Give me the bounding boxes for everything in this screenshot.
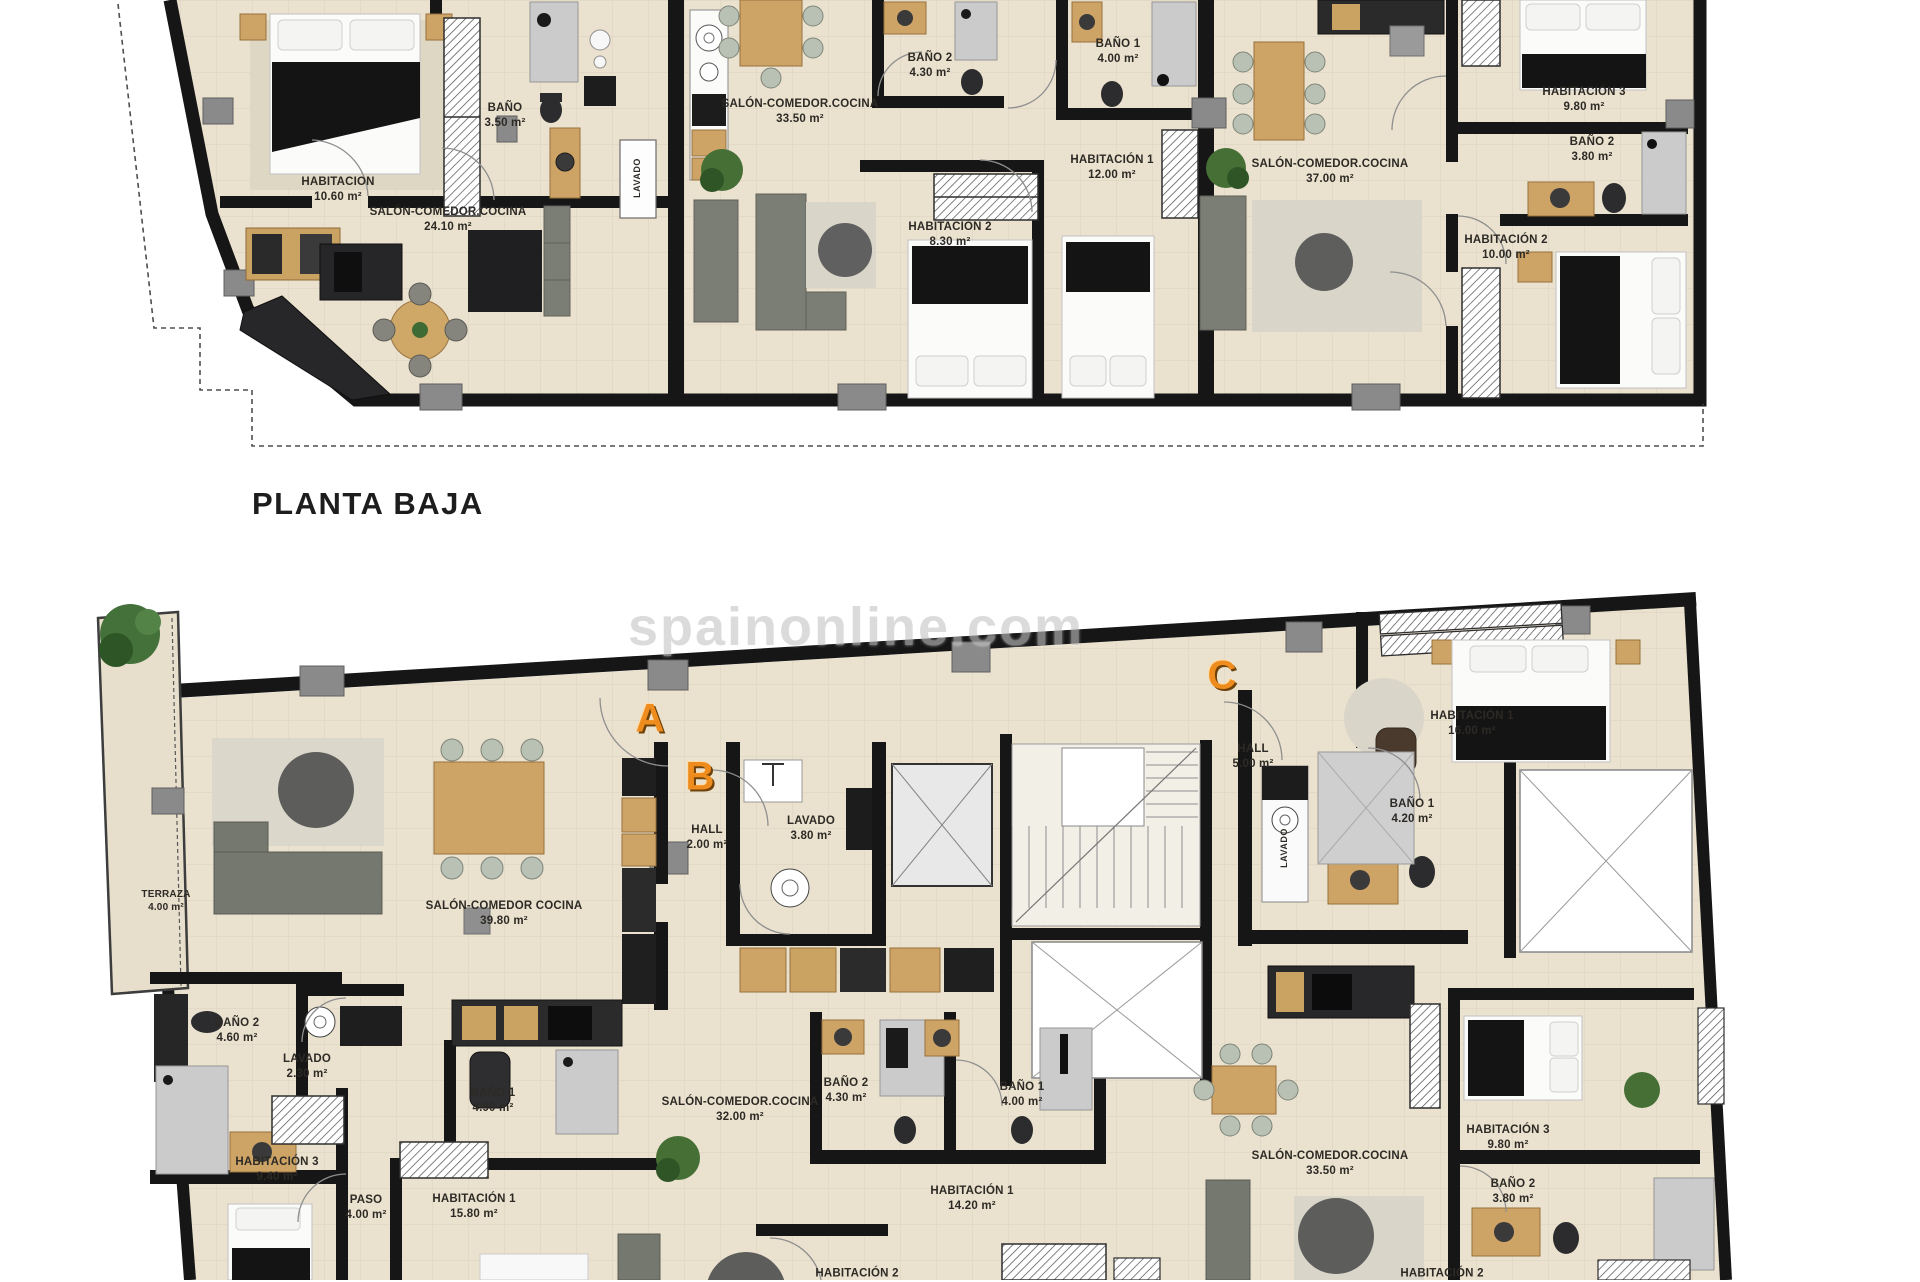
- watermark: spainonline.com: [628, 596, 1084, 658]
- floor-title: PLANTA BAJA: [252, 486, 484, 522]
- plan-first-floor: [98, 599, 1728, 1280]
- plan-planta-baja: [118, 0, 1703, 446]
